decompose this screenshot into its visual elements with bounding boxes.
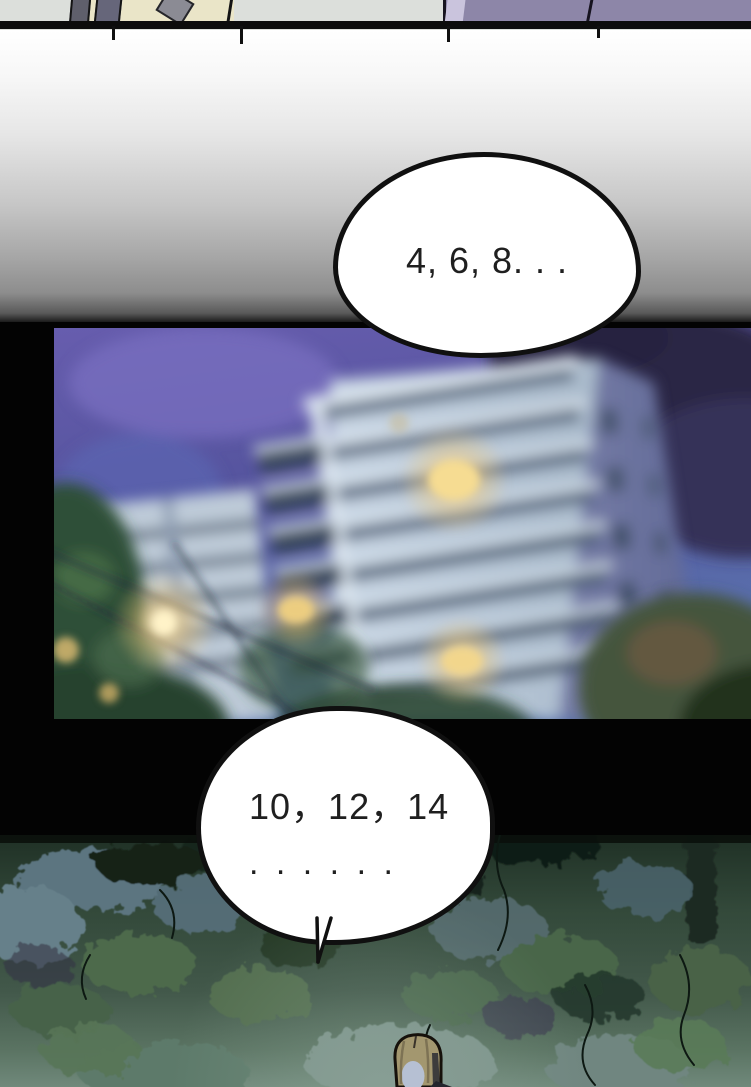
building-illustration — [54, 328, 751, 719]
previous-panel-strip — [0, 0, 751, 30]
cloth-fold-shape — [69, 0, 91, 23]
ink-stub — [447, 26, 450, 42]
ink-stub — [597, 26, 600, 38]
cloth-fold-shape — [94, 0, 122, 23]
speech-bubble-tail — [308, 916, 344, 968]
ink-stub — [240, 26, 243, 44]
ink-stub — [112, 26, 115, 40]
bubble-text: 4, 6, 8. . . — [406, 228, 568, 282]
bubble-text-line1: 10，12，14 — [249, 778, 449, 830]
building-photo-panel — [54, 328, 751, 719]
speech-bubble-second: 10，12，14 . . . . . . — [196, 706, 495, 945]
comic-page: 4, 6, 8. . . 10，12，14 . . . . . . — [0, 0, 751, 1087]
bubble-text-line2: . . . . . . — [249, 844, 397, 883]
